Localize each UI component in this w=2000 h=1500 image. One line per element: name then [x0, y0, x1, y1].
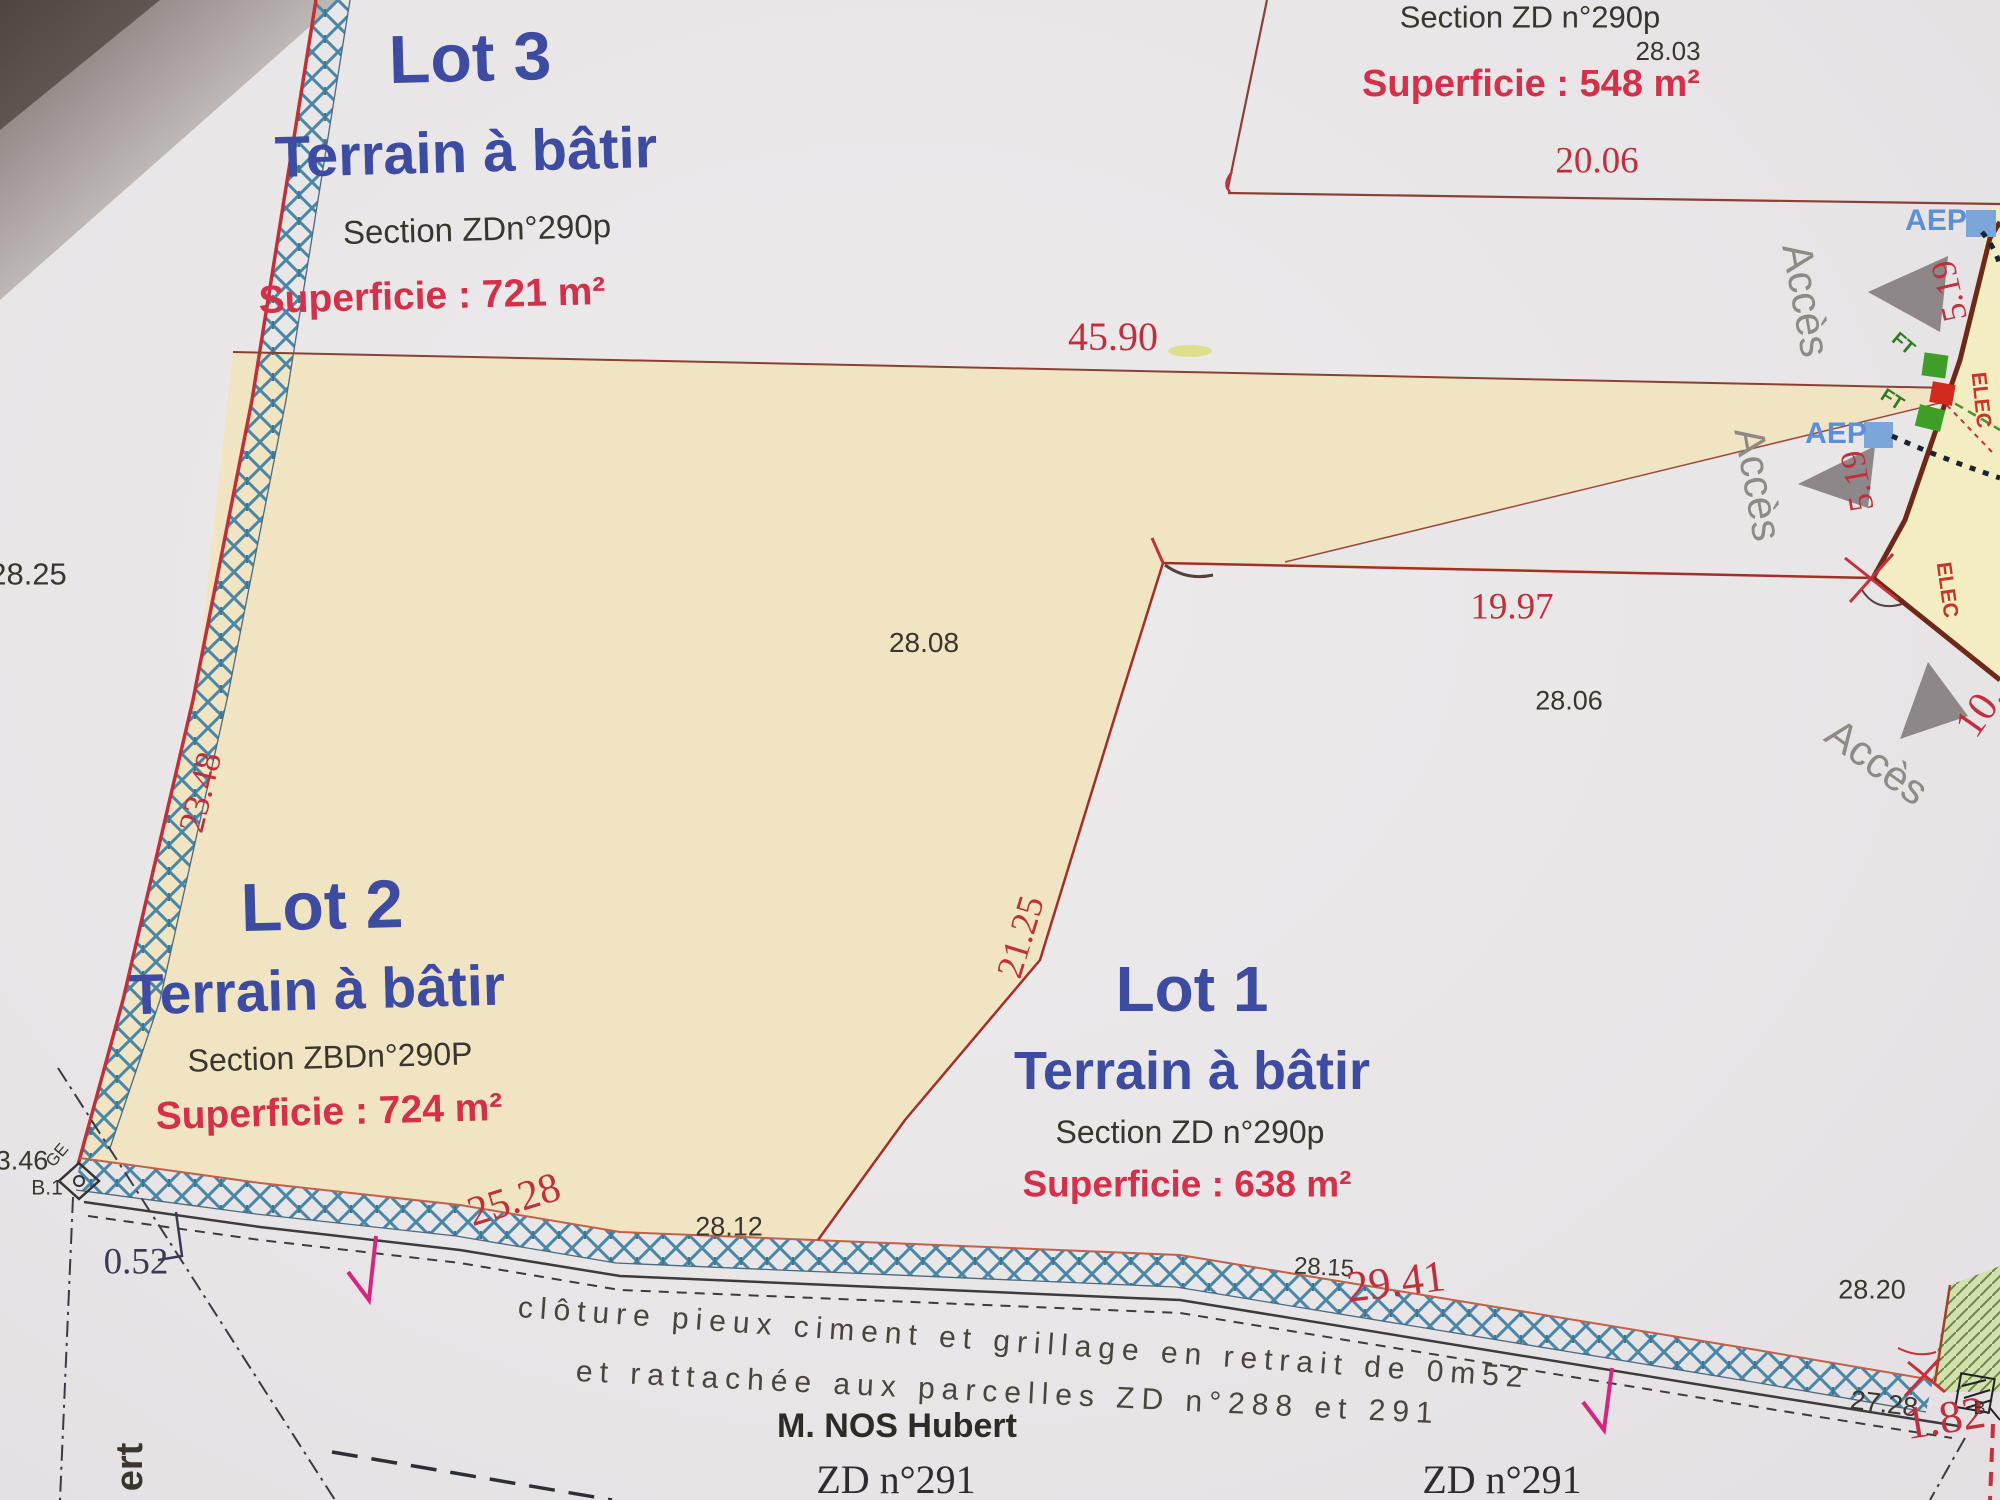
lot2-title: Lot 2 [240, 870, 404, 942]
parcel548-area: Superficie : 548 m² [1362, 65, 1700, 103]
dim-0-52: 0.52 [104, 1244, 169, 1281]
lot2-section: Section ZBDn°290P [187, 1037, 473, 1076]
dim-45-90: 45.90 [1068, 317, 1158, 357]
dim-3-46: 3.46 [0, 1148, 48, 1175]
lot1-corner-dark-hook [1165, 565, 1213, 577]
dashdot-line-vertical [60, 1197, 73, 1500]
dim-28-20: 28.20 [1838, 1277, 1906, 1304]
dim-28-06: 28.06 [1535, 688, 1603, 715]
aep-label-2: AEP [1805, 419, 1867, 449]
dim-28-03: 28.03 [1635, 38, 1700, 64]
aep-square-2 [1864, 422, 1893, 448]
lot1-type: Terrain à bâtir [1014, 1044, 1370, 1098]
magenta-arrow-2 [1583, 1368, 1612, 1430]
dim-19-97: 19.97 [1470, 589, 1553, 626]
dim-20-06: 20.06 [1555, 143, 1638, 180]
dim-28-25: 28.25 [0, 559, 67, 590]
dim-5-19-b: 5.19 [1834, 448, 1879, 514]
street-name-partial: ert [111, 1443, 149, 1492]
owner-name: M. NOS Hubert [777, 1409, 1017, 1443]
dim-28-08: 28.08 [889, 629, 959, 657]
lot3-type: Terrain à bâtir [274, 119, 658, 187]
lot1-area: Superficie : 638 m² [1022, 1166, 1351, 1203]
marker-b-dot: B. [1973, 1399, 1990, 1417]
lot3-title: Lot 3 [388, 22, 552, 94]
lot3-section: Section ZDn°290p [343, 209, 612, 249]
elec-square [1929, 381, 1955, 406]
parcel548-section: Section ZD n°290p [1400, 2, 1661, 33]
dashdot-line-bottom-right [1930, 1438, 1965, 1500]
neighbour-parcel-left: ZD n°291 [816, 1460, 975, 1500]
parcel548-south-edge [1228, 193, 2000, 204]
ft-square-1 [1921, 352, 1948, 378]
elec-label-1: ELEC [1968, 371, 1995, 429]
lot2-type: Terrain à bâtir [128, 958, 505, 1025]
magenta-arrow-1 [348, 1236, 376, 1300]
lot1-section: Section ZD n°290p [1056, 1116, 1325, 1148]
dim-28-12: 28.12 [695, 1214, 763, 1241]
dim-29-41: 29.41 [1344, 1254, 1448, 1310]
highlighter-smudge [1168, 345, 1212, 357]
heavy-dashed-line [332, 1452, 612, 1500]
cadastral-plan-photo: Lot 3 Terrain à bâtir Section ZDn°290p S… [0, 0, 2000, 1500]
marker-b1: B.1 [31, 1178, 63, 1199]
lot1-title: Lot 1 [1116, 957, 1269, 1021]
red-dashes-right-edge [1990, 1424, 1993, 1500]
neighbour-parcel-right: ZD n°291 [1422, 1460, 1581, 1500]
south-fence-hatch-band [76, 1158, 1933, 1412]
lot3-area: Superficie : 721 m² [258, 272, 606, 320]
aep-label-1: AEP [1905, 206, 1967, 236]
lot2-area: Superficie : 724 m² [155, 1088, 503, 1136]
parcel548-west-edge [1228, 0, 1267, 188]
plan-drawing [0, 0, 2000, 1500]
